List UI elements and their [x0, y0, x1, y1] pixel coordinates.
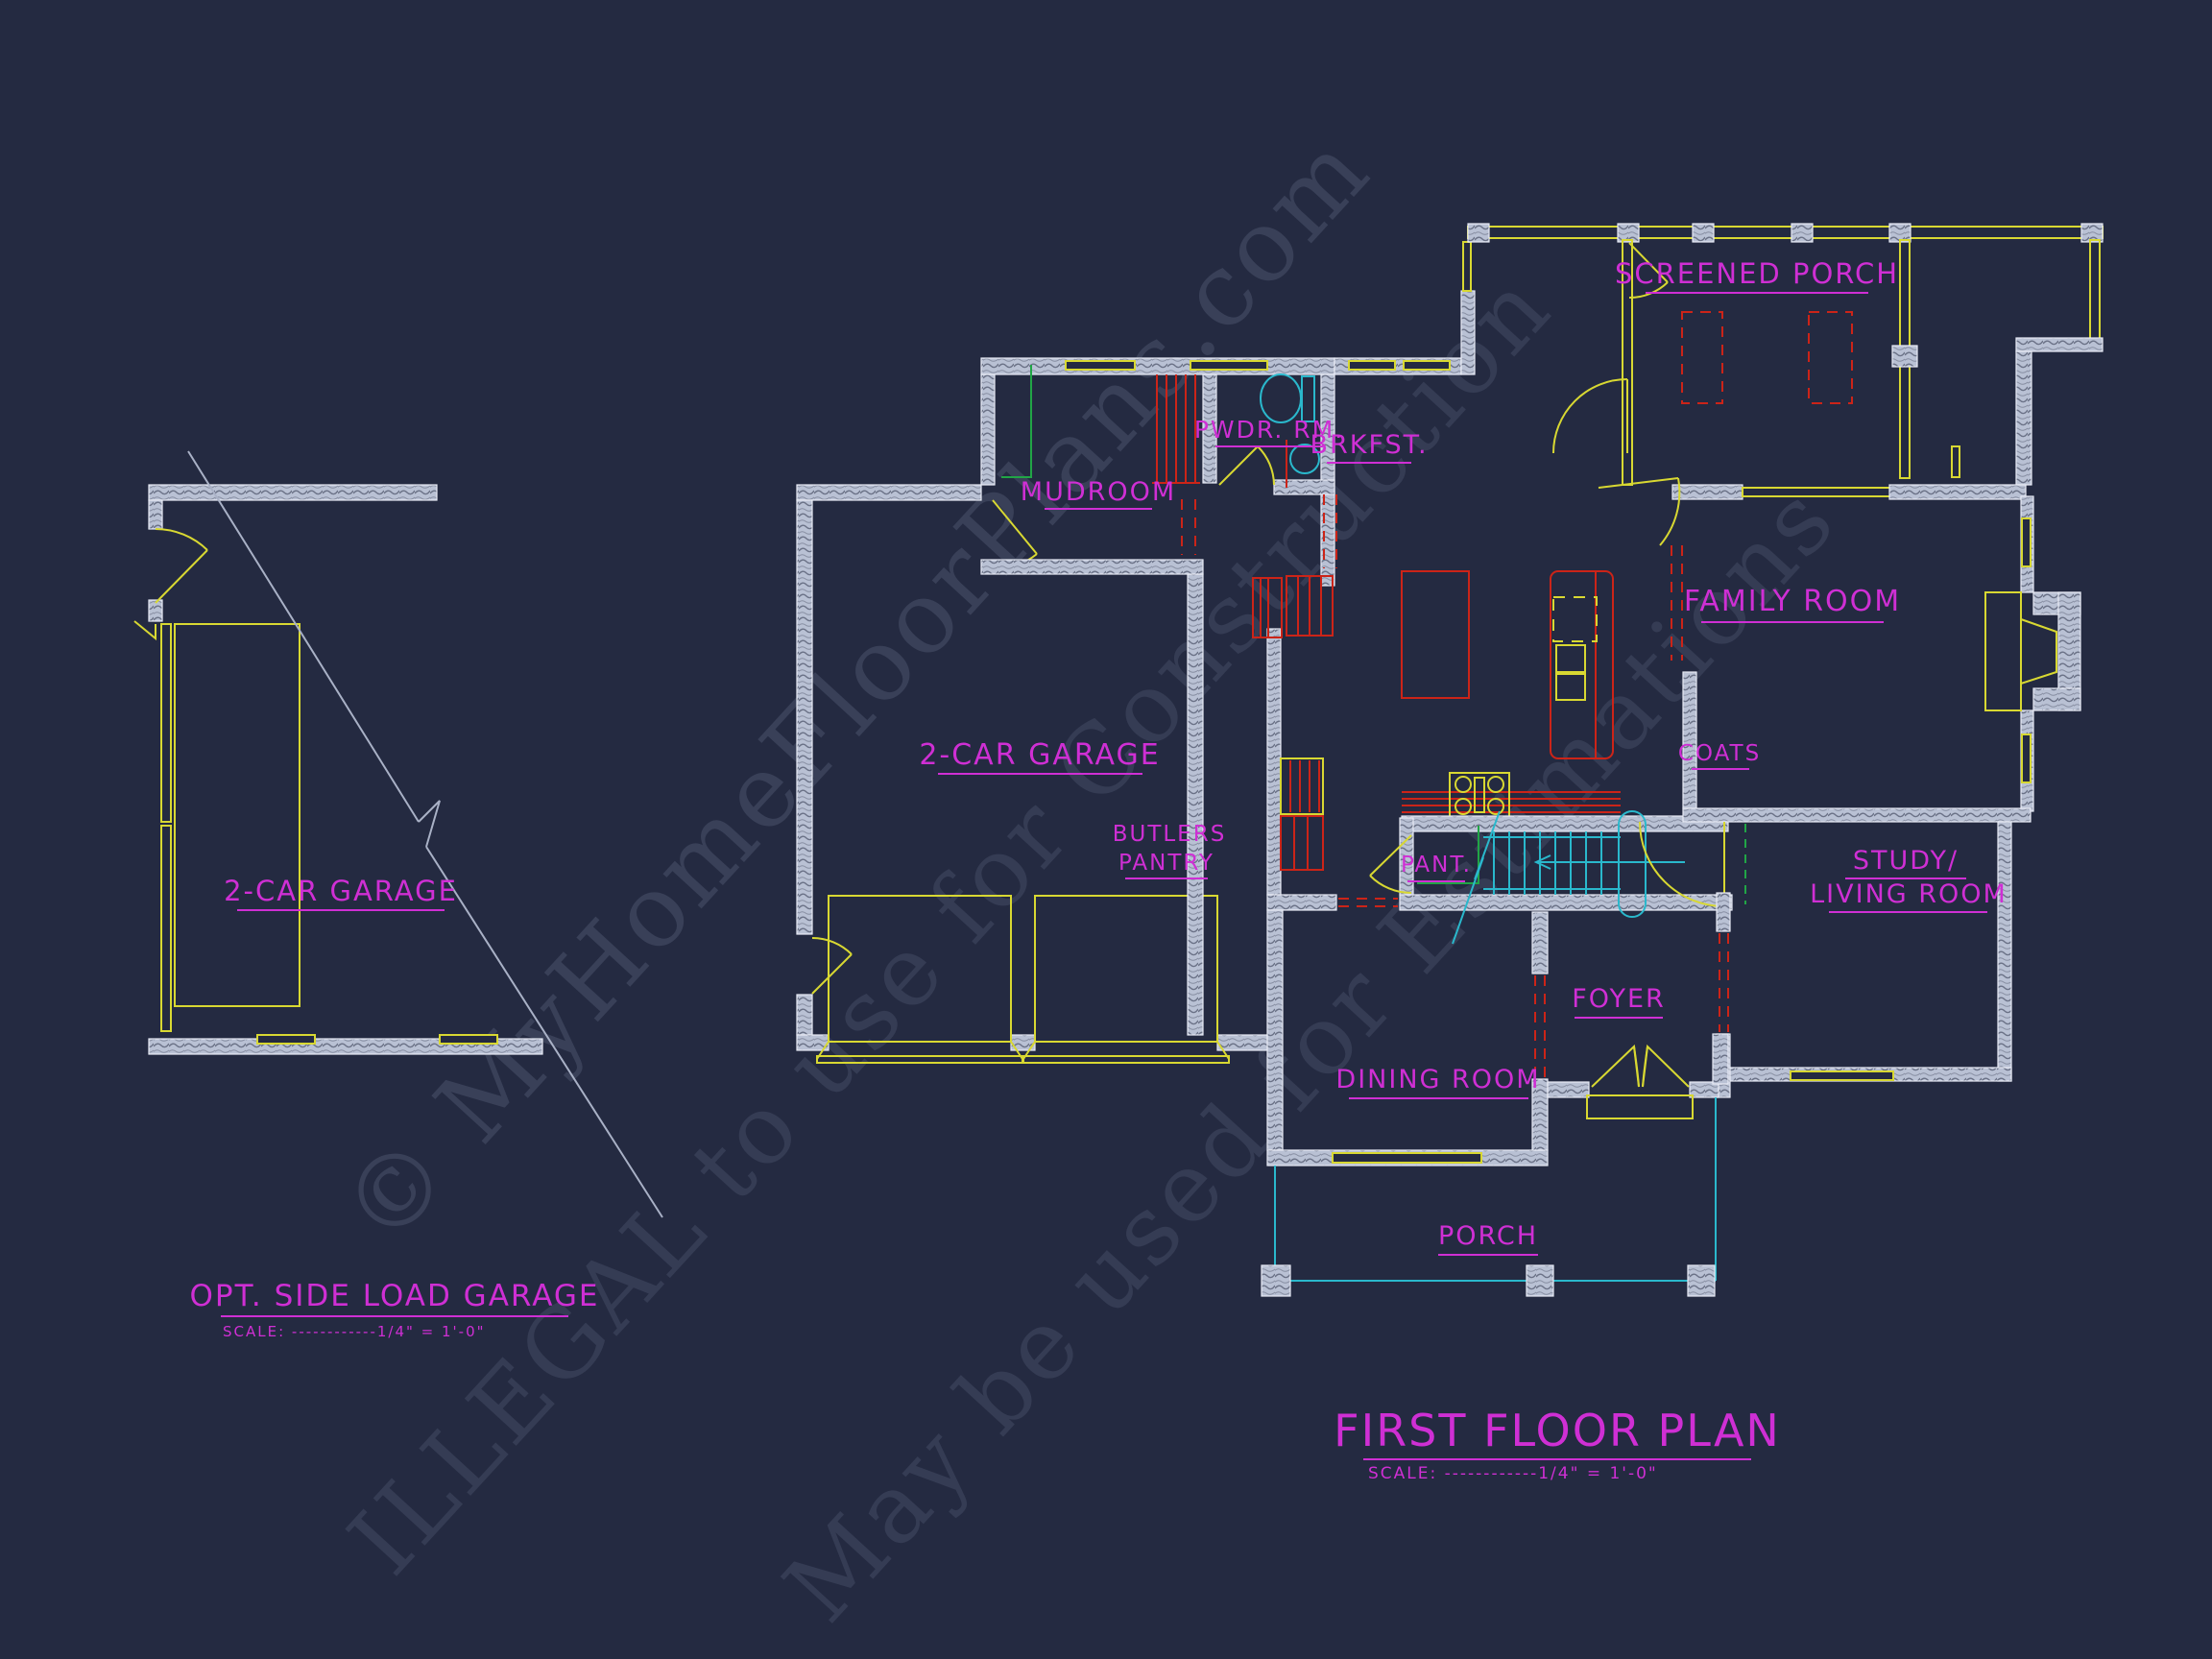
window	[1404, 361, 1450, 370]
wall-garage-left	[797, 995, 812, 1035]
skylight-outline	[1682, 312, 1722, 403]
wall-family-top	[1672, 485, 1743, 499]
wall-dining-left	[1267, 910, 1283, 1150]
room-label-study-1: STUDY/	[1853, 846, 1959, 876]
garage-bay-outline	[175, 624, 300, 1006]
opt-plan-title: OPT. SIDE LOAD GARAGE	[190, 1279, 600, 1313]
window	[1743, 488, 1912, 496]
room-label-screened-porch: SCREENED PORCH	[1615, 257, 1899, 290]
island	[1402, 571, 1469, 698]
wall-foyer-front	[1548, 1082, 1589, 1097]
screened-porch: SCREENED PORCH	[1468, 224, 2103, 485]
window	[1333, 1153, 1481, 1163]
garage-door-panel	[161, 624, 171, 822]
floorplan-drawing: © MyHomeFloorPlans.com ILLEGAL to use fo…	[0, 0, 2212, 1659]
title-block: FIRST FLOOR PLAN SCALE: ------------1/4"…	[1334, 1405, 1781, 1483]
post	[1892, 346, 1917, 367]
wall-family-top	[1889, 485, 2026, 499]
room-label-garage: 2-CAR GARAGE	[919, 738, 1160, 772]
plan-title: FIRST FLOOR PLAN	[1334, 1405, 1781, 1456]
wall-foyer-corner	[1713, 1034, 1728, 1084]
wall-cabinet-bank	[1281, 758, 1323, 870]
window	[440, 1035, 497, 1044]
window	[1952, 446, 1960, 477]
opt-plan-scale: SCALE: ------------1/4" = 1'-0"	[223, 1323, 486, 1340]
door-leaf	[156, 550, 207, 603]
wall-pwdr-bottom	[1274, 480, 1334, 494]
floorplan-canvas: © MyHomeFloorPlans.com ILLEGAL to use fo…	[0, 0, 2212, 1659]
window	[2022, 734, 2031, 782]
wall-notch	[134, 621, 156, 638]
post	[1468, 224, 1489, 242]
wall-study-top	[1683, 808, 2031, 822]
wall-garage-bottom	[1217, 1035, 1270, 1050]
wall-coats	[1683, 672, 1696, 808]
wall-study-left	[1717, 893, 1730, 931]
room-label-porch: PORCH	[1438, 1221, 1538, 1251]
study-living-room: COATS STUDY/ LIVING ROOM	[1640, 672, 2031, 1097]
wall-kitchen-west	[1267, 629, 1281, 895]
window	[257, 1035, 315, 1044]
room-label-dining: DINING ROOM	[1335, 1065, 1540, 1094]
front-double-door	[1587, 1046, 1693, 1118]
room-label-opt-garage: 2-CAR GARAGE	[224, 875, 458, 907]
wall	[149, 500, 162, 529]
room-label-family-room: FAMILY ROOM	[1684, 585, 1901, 618]
window	[1463, 242, 1471, 291]
nook-wall	[2090, 240, 2100, 341]
room-label-foyer: FOYER	[1572, 984, 1666, 1014]
door-arc	[156, 529, 207, 550]
door-arc	[1640, 822, 1724, 906]
wall-stub	[1461, 291, 1475, 374]
wall-garage-top	[797, 485, 981, 500]
wall-mudroom-bottom	[981, 560, 1203, 574]
room-label-coats: COATS	[1678, 741, 1761, 766]
window	[2022, 518, 2031, 566]
room-label-brkfst: BRKFST.	[1310, 430, 1428, 460]
wall-mudroom-left	[981, 374, 995, 485]
wall-garage-left	[797, 500, 812, 934]
door-arc	[1553, 379, 1627, 453]
room-label-butlers-2: PANTRY	[1118, 851, 1214, 876]
window	[1066, 361, 1135, 370]
porch-top-wall	[1468, 227, 2103, 238]
wall	[2016, 351, 2032, 485]
window	[1190, 361, 1267, 370]
room-label-butlers-1: BUTLERS	[1113, 822, 1227, 847]
wall	[149, 600, 162, 621]
wall-hall-bottom	[1400, 895, 1732, 910]
wall-dining-right	[1532, 912, 1548, 974]
wall-garage-right	[1188, 574, 1203, 1035]
plan-scale: SCALE: ------------1/4" = 1'-0"	[1368, 1464, 1658, 1483]
door-leaf	[1219, 446, 1258, 485]
fireplace	[1985, 592, 2080, 710]
wall-hall-top	[1402, 816, 1728, 831]
wall-hall-bottom	[1267, 895, 1336, 910]
front-porch: PORCH	[1262, 1097, 1716, 1296]
wall	[2016, 338, 2103, 351]
window	[1349, 361, 1395, 370]
wall-study-right	[1998, 822, 2011, 1081]
skylight-outline	[1809, 312, 1852, 403]
wall-mudroom-top	[981, 358, 1334, 374]
porch-post	[1262, 1265, 1290, 1296]
door-arc	[1258, 446, 1274, 485]
room-label-study-2: LIVING ROOM	[1810, 879, 2008, 909]
post	[1693, 224, 1714, 242]
porch-post	[1688, 1265, 1715, 1296]
post	[1791, 224, 1813, 242]
room-label-pant: PANT.	[1401, 853, 1472, 878]
garage-door-panel	[161, 826, 171, 1031]
wall	[149, 485, 437, 500]
door-leaf	[1599, 478, 1678, 488]
window	[1791, 1071, 1893, 1080]
room-label-mudroom: MUDROOM	[1021, 477, 1176, 507]
porch-post	[1527, 1265, 1553, 1296]
door-arc	[812, 938, 852, 954]
